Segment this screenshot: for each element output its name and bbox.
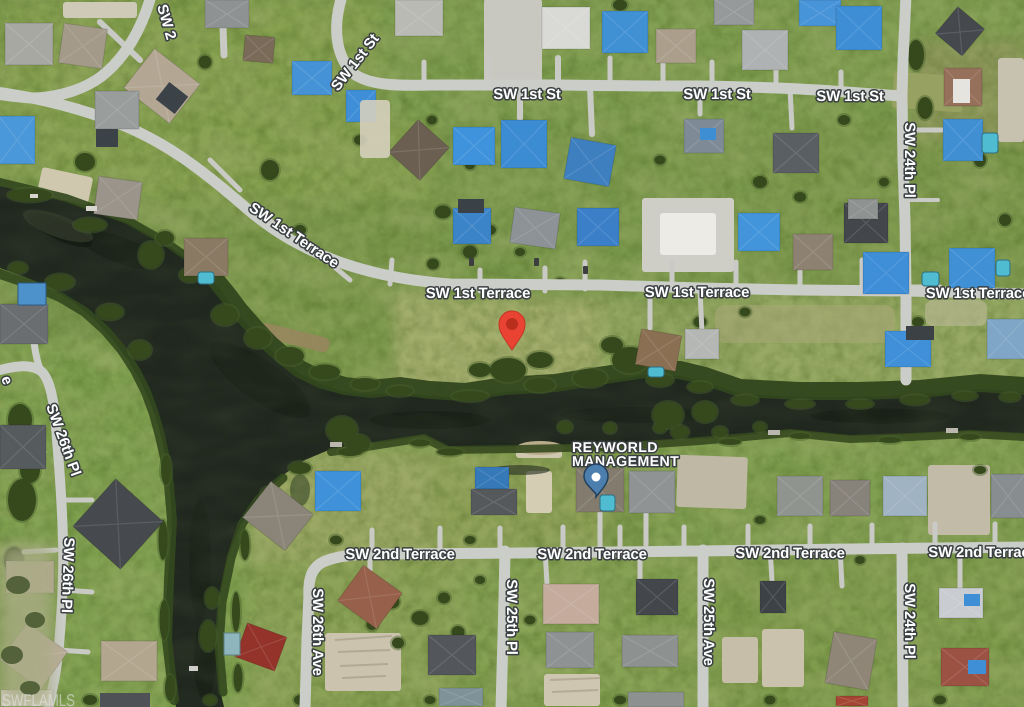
svg-text:SW 26th Pl: SW 26th Pl <box>58 537 78 613</box>
svg-text:SW 2nd Terrace: SW 2nd Terrace <box>928 544 1024 561</box>
svg-text:SW 1st St: SW 1st St <box>493 86 561 103</box>
svg-text:SW 1st Terrace: SW 1st Terrace <box>426 285 530 302</box>
svg-text:SW 26th Ave: SW 26th Ave <box>309 588 326 676</box>
svg-text:SW 25th Pl: SW 25th Pl <box>503 579 520 655</box>
svg-text:SW 2nd Terrace: SW 2nd Terrace <box>345 546 454 563</box>
svg-text:SW 2nd Terrace: SW 2nd Terrace <box>735 545 844 562</box>
svg-text:SW 1st St: SW 1st St <box>683 86 751 103</box>
svg-text:SW 24th Pl: SW 24th Pl <box>901 583 918 659</box>
svg-text:SW 24th Pl: SW 24th Pl <box>901 122 918 198</box>
svg-text:SW 2nd Terrace: SW 2nd Terrace <box>537 546 646 563</box>
svg-text:SW 25th Ave: SW 25th Ave <box>700 578 717 666</box>
svg-text:SW 1st St: SW 1st St <box>816 88 884 105</box>
svg-text:SWFLAMLS: SWFLAMLS <box>2 691 75 707</box>
svg-text:SW 1st Terrace: SW 1st Terrace <box>645 284 749 301</box>
svg-text:SW 1st Terrace: SW 1st Terrace <box>926 285 1024 302</box>
